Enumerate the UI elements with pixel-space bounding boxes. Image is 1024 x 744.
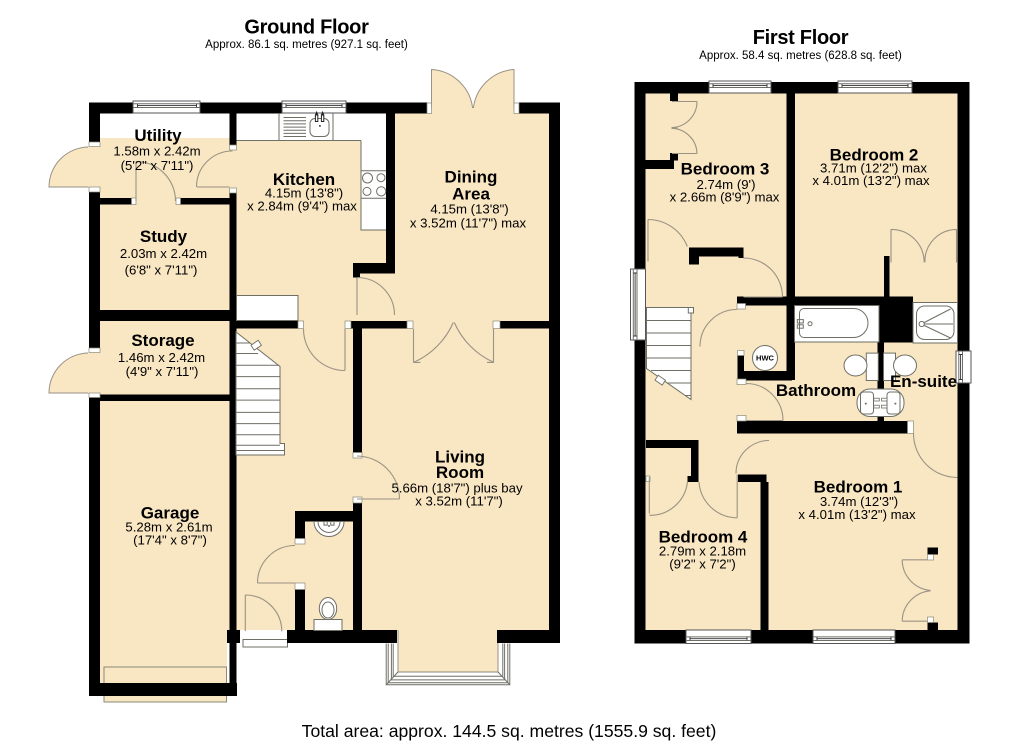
svg-text:Room: Room [436,463,484,482]
svg-text:Bedroom 3: Bedroom 3 [681,160,770,179]
svg-text:2.03m x 2.42m: 2.03m x 2.42m [120,246,207,261]
svg-text:Ground Floor: Ground Floor [244,17,369,39]
svg-text:4.15m (13'8"): 4.15m (13'8") [430,202,508,217]
svg-text:x 4.01m (13'2") max: x 4.01m (13'2") max [798,507,916,522]
svg-text:HWC: HWC [756,354,774,363]
svg-text:1.58m x 2.42m: 1.58m x 2.42m [113,144,200,159]
svg-text:x 4.01m (13'2") max: x 4.01m (13'2") max [812,173,930,188]
svg-text:(6'8" x 7'11"): (6'8" x 7'11") [125,263,198,278]
svg-text:First Floor: First Floor [753,27,849,49]
svg-text:x 2.66m (8'9") max: x 2.66m (8'9") max [670,190,780,205]
svg-text:(17'4" x 8'7"): (17'4" x 8'7") [133,533,207,548]
svg-text:Approx. 58.4 sq. metres (628.8: Approx. 58.4 sq. metres (628.8 sq. feet) [699,50,902,62]
svg-text:En-suite: En-suite [890,372,957,391]
svg-text:Study: Study [140,227,188,246]
svg-text:Approx. 86.1 sq. metres (927.1: Approx. 86.1 sq. metres (927.1 sq. feet) [205,39,408,51]
svg-text:Storage: Storage [131,331,194,350]
svg-text:Utility: Utility [134,126,182,145]
svg-text:(9'2" x 7'2"): (9'2" x 7'2") [669,557,735,572]
svg-text:x 2.84m (9'4") max: x 2.84m (9'4") max [247,199,357,214]
svg-text:(4'9" x 7'11"): (4'9" x 7'11") [126,364,199,379]
svg-text:(5'2" x 7'11"): (5'2" x 7'11") [121,158,194,173]
svg-text:Total area: approx. 144.5 sq.: Total area: approx. 144.5 sq. metres (15… [302,721,717,741]
svg-text:x 3.52m (11'7") max: x 3.52m (11'7") max [410,216,527,231]
svg-text:Bathroom: Bathroom [776,381,856,400]
svg-text:1.46m x 2.42m: 1.46m x 2.42m [118,350,205,365]
svg-text:x 3.52m (11'7"): x 3.52m (11'7") [415,494,503,509]
